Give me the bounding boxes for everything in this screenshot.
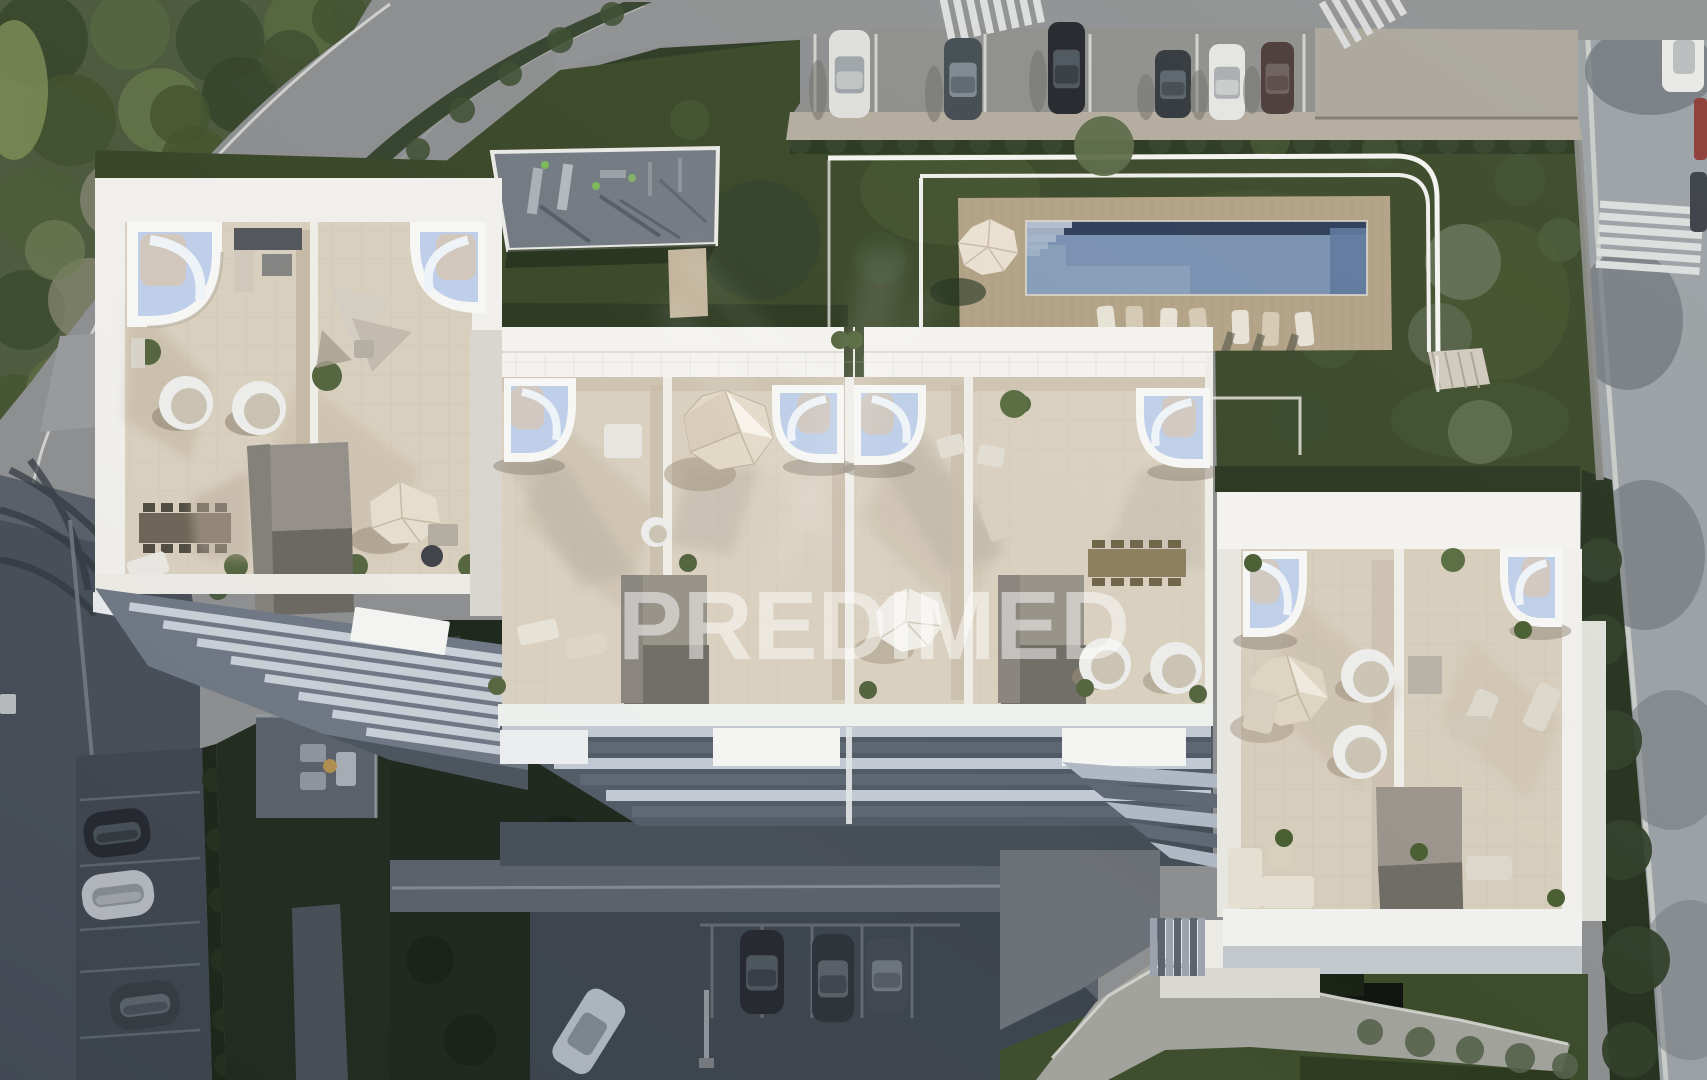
svg-text:PREDIMED: PREDIMED [618,571,1130,680]
